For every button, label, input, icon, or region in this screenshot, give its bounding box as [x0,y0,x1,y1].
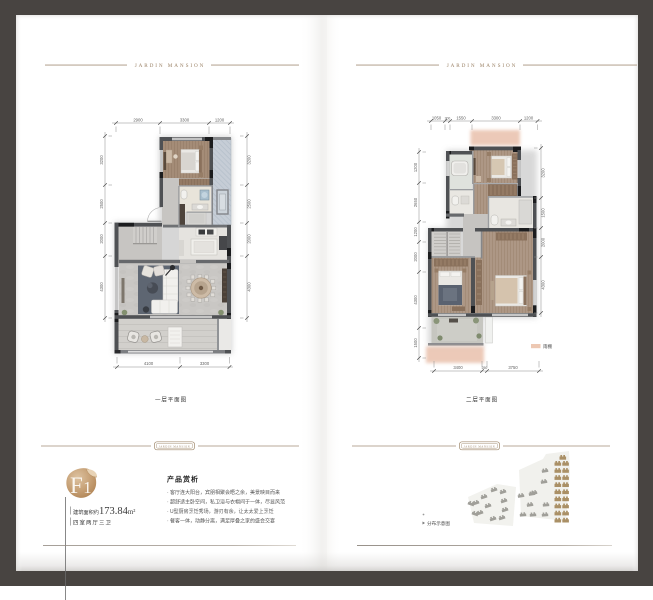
svg-text:JARDIN MANSION: JARDIN MANSION [159,445,191,448]
svg-text:2000: 2000 [413,252,418,262]
svg-text:3300: 3300 [180,117,190,122]
svg-text:4300: 4300 [413,295,418,305]
svg-text:2900: 2900 [133,117,143,122]
svg-text:2000: 2000 [247,234,252,244]
svg-text:1200: 1200 [524,115,534,120]
svg-text:四室两厅三卫: 四室两厅三卫 [73,519,112,527]
svg-text:3200: 3200 [99,155,104,165]
svg-text:1550: 1550 [456,115,466,120]
svg-text:3750: 3750 [508,365,518,370]
svg-text:2650: 2650 [413,197,418,207]
svg-text:1050: 1050 [432,115,442,120]
svg-text:JARDIN MANSION: JARDIN MANSION [464,445,496,448]
svg-text:1200: 1200 [413,227,418,237]
svg-text:· 超舒适主卧空间，私卫浴与衣帽间于一体，尽显风范: · 超舒适主卧空间，私卫浴与衣帽间于一体，尽显风范 [167,499,285,506]
svg-text:· 客厅连大阳台，宾朋相聚会晤之余，美景映目而来: · 客厅连大阳台，宾朋相聚会晤之余，美景映目而来 [167,489,280,496]
svg-text:4100: 4100 [144,361,154,366]
svg-text:1500: 1500 [413,338,418,348]
svg-text:1200: 1200 [413,162,418,172]
svg-text:4300: 4300 [247,282,252,292]
svg-text:· U型厨房烹饪秀场，游刃有余，让太太爱上烹饪: · U型厨房烹饪秀场，游刃有余，让太太爱上烹饪 [167,508,274,515]
svg-text:JARDIN MANSION: JARDIN MANSION [447,63,518,69]
svg-text:300: 300 [445,116,451,120]
svg-text:一层平面图: 一层平面图 [155,396,187,404]
svg-text:2000: 2000 [99,234,104,244]
svg-text:JARDIN MANSION: JARDIN MANSION [135,63,206,69]
svg-text:2500: 2500 [99,199,104,209]
svg-text:3400: 3400 [453,365,463,370]
svg-text:3200: 3200 [541,168,546,178]
svg-text:3300: 3300 [491,115,501,120]
svg-text:2000: 2000 [541,237,546,247]
svg-text:1500: 1500 [541,208,546,218]
svg-text:3200: 3200 [247,155,252,165]
svg-text:250: 250 [482,366,488,370]
svg-text:分布示意图: 分布示意图 [427,520,450,527]
svg-text:二层平面图: 二层平面图 [466,396,498,404]
svg-text:1200: 1200 [215,117,225,122]
svg-text:雨棚: 雨棚 [543,343,552,350]
svg-text:产品赏析: 产品赏析 [167,475,199,484]
svg-text:3300: 3300 [200,361,210,366]
svg-text:· 餐客一体，动静分离，满足厚叠之家的盛会交宴: · 餐客一体，动静分离，满足厚叠之家的盛会交宴 [167,518,275,525]
svg-text:4300: 4300 [541,280,546,290]
svg-text:4300: 4300 [99,282,104,292]
svg-text:2500: 2500 [247,199,252,209]
